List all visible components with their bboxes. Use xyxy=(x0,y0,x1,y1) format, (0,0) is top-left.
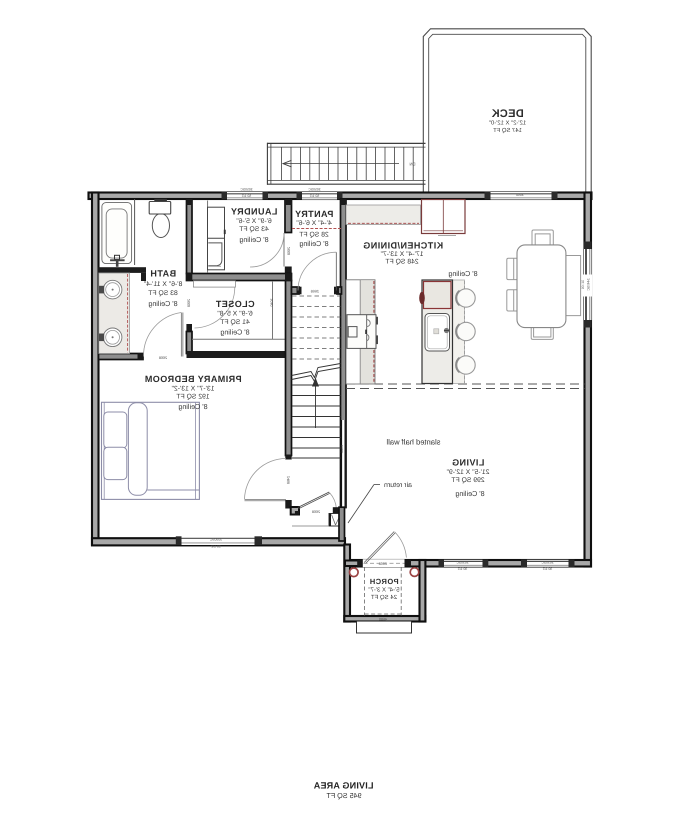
svg-text:248 SQ FT: 248 SQ FT xyxy=(385,259,418,266)
svg-text:2668: 2668 xyxy=(287,247,291,255)
svg-text:3050: 3050 xyxy=(516,193,524,197)
svg-text:3030SC: 3030SC xyxy=(209,538,222,542)
svg-text:PRIMARY BEDROOM: PRIMARY BEDROOM xyxy=(144,374,241,384)
svg-text:2668: 2668 xyxy=(159,356,167,360)
svg-text:slanted half wall: slanted half wall xyxy=(386,437,440,446)
svg-text:43 SQ FT: 43 SQ FT xyxy=(239,226,268,233)
svg-text:945 SQ FT: 945 SQ FT xyxy=(326,791,362,800)
svg-text:28 SQ FT: 28 SQ FT xyxy=(299,231,328,238)
svg-text:PANTRY: PANTRY xyxy=(295,209,334,219)
svg-text:2440SC: 2440SC xyxy=(586,278,590,291)
svg-text:2668: 2668 xyxy=(379,562,387,566)
svg-text:17'-4" X 13'-7": 17'-4" X 13'-7" xyxy=(380,251,424,258)
svg-text:30 1/2: 30 1/2 xyxy=(458,567,468,571)
svg-text:KITCHEN/DINING: KITCHEN/DINING xyxy=(363,241,443,251)
svg-text:13'-7" X 13'-2": 13'-7" X 13'-2" xyxy=(171,386,215,393)
svg-text:LAUNDRY: LAUNDRY xyxy=(231,207,278,217)
svg-text:DECK: DECK xyxy=(491,108,523,120)
svg-text:2668: 2668 xyxy=(311,290,319,294)
svg-text:3030SC: 3030SC xyxy=(541,560,554,564)
svg-text:8' Ceiling: 8' Ceiling xyxy=(299,239,328,248)
svg-text:3040: 3040 xyxy=(270,298,274,306)
svg-text:BATH: BATH xyxy=(150,269,176,279)
svg-text:31'-06: 31'-06 xyxy=(581,280,585,289)
svg-text:24 SQ FT: 24 SQ FT xyxy=(371,594,397,601)
svg-text:8' Ceiling: 8' Ceiling xyxy=(448,269,477,278)
svg-text:6'-9" X 5'-6": 6'-9" X 5'-6" xyxy=(236,218,272,225)
svg-text:DN: DN xyxy=(409,162,415,167)
svg-text:8' Ceiling: 8' Ceiling xyxy=(455,489,484,498)
svg-text:3030SC: 3030SC xyxy=(456,560,469,564)
svg-text:2668: 2668 xyxy=(187,299,191,307)
svg-text:147 SQ FT: 147 SQ FT xyxy=(493,127,522,134)
svg-text:41 SQ FT: 41 SQ FT xyxy=(220,319,249,326)
svg-text:LIVING AREA: LIVING AREA xyxy=(313,781,373,791)
svg-text:299 SQ FT: 299 SQ FT xyxy=(451,477,484,484)
svg-text:192 SQ FT: 192 SQ FT xyxy=(176,394,209,401)
svg-text:50 1/2: 50 1/2 xyxy=(242,194,252,198)
svg-text:8' Ceiling: 8' Ceiling xyxy=(148,299,177,308)
svg-text:8' Ceiling: 8' Ceiling xyxy=(220,328,249,337)
svg-text:2668: 2668 xyxy=(312,510,320,514)
svg-text:6'-9" X 5'-8": 6'-9" X 5'-8" xyxy=(217,311,253,318)
svg-text:4680: 4680 xyxy=(379,617,387,621)
svg-text:air return: air return xyxy=(384,481,412,489)
svg-text:21'-5" X 12'-9": 21'-5" X 12'-9" xyxy=(446,469,490,476)
svg-text:3050SC: 3050SC xyxy=(240,188,253,192)
svg-text:HVAC: HVAC xyxy=(340,445,344,454)
svg-text:4'-4" X 6'-6": 4'-4" X 6'-6" xyxy=(296,220,332,227)
svg-text:8' Ceiling: 8' Ceiling xyxy=(178,402,207,411)
svg-text:8' Ceiling: 8' Ceiling xyxy=(239,235,268,244)
svg-text:8'-6" X 11'-4": 8'-6" X 11'-4" xyxy=(143,281,182,288)
svg-text:83 SQ FT: 83 SQ FT xyxy=(148,290,177,297)
svg-text:30 1/2: 30 1/2 xyxy=(543,567,553,571)
svg-text:12'-2" X 12'-0": 12'-2" X 12'-0" xyxy=(489,120,526,127)
svg-text:LIVING: LIVING xyxy=(452,458,485,468)
svg-text:3050SC: 3050SC xyxy=(308,188,321,192)
svg-text:2468: 2468 xyxy=(287,476,291,484)
svg-text:50 1/2: 50 1/2 xyxy=(310,194,320,198)
svg-text:PORCH: PORCH xyxy=(369,577,398,586)
svg-text:5'-4" X 3'-7": 5'-4" X 3'-7" xyxy=(368,587,399,594)
svg-text:30 1/2: 30 1/2 xyxy=(211,545,221,549)
svg-text:CLOSET: CLOSET xyxy=(215,299,254,309)
